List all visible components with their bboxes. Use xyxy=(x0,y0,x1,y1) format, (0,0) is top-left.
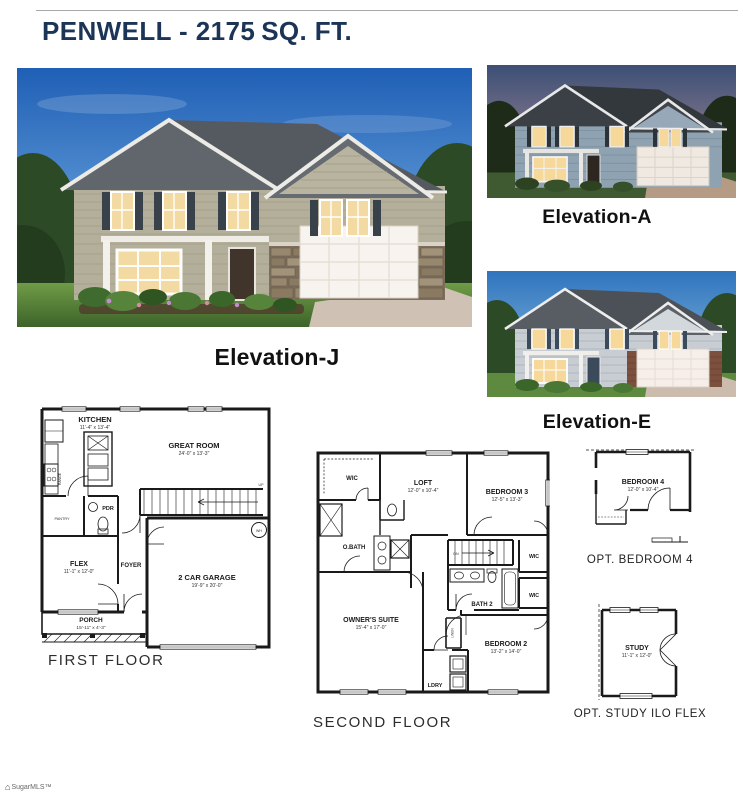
elevation-e-photo xyxy=(487,271,736,397)
porch-post xyxy=(205,240,212,300)
room-dims-flex: 11'-1" x 12'-0" xyxy=(64,569,95,575)
room-dims-study: 11'-1" x 12'-0" xyxy=(622,653,653,659)
room-dims-bedroom3: 12'-5" x 13'-3" xyxy=(492,497,523,503)
room-label-flex: FLEX xyxy=(70,561,88,568)
room-label-study: STUDY xyxy=(625,645,649,652)
bay-window xyxy=(117,250,181,294)
room-label-pantry: PANTRY xyxy=(54,517,70,521)
second-floor-svg: WIC LOFT 12'-0" x 10'-4" BEDROOM 3 12'-5… xyxy=(316,450,550,696)
room-label-bedroom2: BEDROOM 2 xyxy=(485,641,528,648)
room-label-pdr: PDR xyxy=(102,506,114,512)
mls-watermark-text: SugarMLS™ xyxy=(11,784,51,791)
room-label-wic-owner: WIC xyxy=(346,476,358,482)
house-icon: ⌂ xyxy=(5,782,10,792)
top-divider-line xyxy=(36,10,738,11)
front-door xyxy=(229,248,255,300)
room-label-range: RANGE xyxy=(58,472,62,485)
opt-bedroom4-plan: BEDROOM 4 12'-0" x 10'-4" xyxy=(586,446,696,548)
stairs-up-label: UP xyxy=(259,483,265,487)
room-label-kitchen: KITCHEN xyxy=(78,415,111,424)
elevation-a-photo xyxy=(487,65,736,198)
linen-label: LINEN xyxy=(451,628,455,638)
mls-watermark: ⌂ SugarMLS™ xyxy=(5,782,52,792)
room-dims-loft: 12'-0" x 10'-4" xyxy=(408,488,439,494)
room-label-foyer: FOYER xyxy=(121,563,142,569)
opt-study-caption: OPT. STUDY ILO FLEX xyxy=(565,708,715,720)
room-label-porch: PORCH xyxy=(79,617,103,624)
elevation-a-label: Elevation-A xyxy=(476,206,718,229)
room-label-bedroom3: BEDROOM 3 xyxy=(486,489,529,496)
room-dims-owners-suite: 15'-4" x 17'-0" xyxy=(356,625,387,631)
elevation-j-label: Elevation-J xyxy=(157,344,397,371)
opt-study-plan: STUDY 11'-1" x 12'-0" xyxy=(596,604,680,702)
room-label-wic-b3: WIC xyxy=(529,554,539,560)
room-label-wic-b2: WIC xyxy=(529,593,539,599)
room-label-garage: 2 CAR GARAGE xyxy=(178,573,236,582)
plan-name: PENWELL - 2175 xyxy=(42,16,255,46)
room-dims-bedroom4: 12'-0" x 10'-4" xyxy=(628,487,659,493)
room-dims-porch: 15'-11" x 4'-3" xyxy=(76,625,105,631)
first-floor-svg: KITCHEN 11'-4" x 13'-4" GREAT ROOM 24'-0… xyxy=(40,406,271,650)
room-label-owners-suite: OWNER'S SUITE xyxy=(343,617,399,624)
elevation-e-illustration xyxy=(487,271,736,397)
room-dims-garage: 19'-9" x 20'-0" xyxy=(192,583,223,589)
second-floor-plan: WIC LOFT 12'-0" x 10'-4" BEDROOM 3 12'-5… xyxy=(316,450,550,696)
opt-bedroom4-svg: BEDROOM 4 12'-0" x 10'-4" xyxy=(586,446,696,548)
stairs-dn-label: DN xyxy=(453,552,459,556)
room-label-bedroom4: BEDROOM 4 xyxy=(622,479,665,486)
room-dims-great-room: 24'-0" x 13'-3" xyxy=(179,451,210,457)
flyer-page: PENWELL - 2175SQ. FT. xyxy=(0,0,743,800)
room-dims-bedroom2: 13'-2" x 14'-0" xyxy=(491,649,522,655)
room-label-obath: O.BATH xyxy=(343,545,366,551)
page-title: PENWELL - 2175SQ. FT. xyxy=(42,16,352,47)
opt-bedroom4-caption: OPT. BEDROOM 4 xyxy=(565,554,715,566)
plan-sqft: SQ. FT. xyxy=(261,16,352,46)
elevation-j-illustration xyxy=(17,68,472,327)
room-label-ldry: LDRY xyxy=(428,683,443,689)
elevation-a-illustration xyxy=(487,65,736,198)
opt-study-svg: STUDY 11'-1" x 12'-0" xyxy=(596,604,680,702)
water-heater-label: WH xyxy=(256,529,262,533)
room-label-loft: LOFT xyxy=(414,480,433,487)
room-label-great-room: GREAT ROOM xyxy=(168,441,219,450)
first-floor-caption: FIRST FLOOR xyxy=(48,652,165,669)
first-floor-plan: KITCHEN 11'-4" x 13'-4" GREAT ROOM 24'-0… xyxy=(40,406,271,650)
elevation-e-label: Elevation-E xyxy=(476,411,718,434)
room-label-bath2: BATH 2 xyxy=(471,602,493,608)
room-dims-kitchen: 11'-4" x 13'-4" xyxy=(80,425,111,431)
second-floor-caption: SECOND FLOOR xyxy=(313,714,452,731)
elevation-j-photo xyxy=(17,68,472,327)
